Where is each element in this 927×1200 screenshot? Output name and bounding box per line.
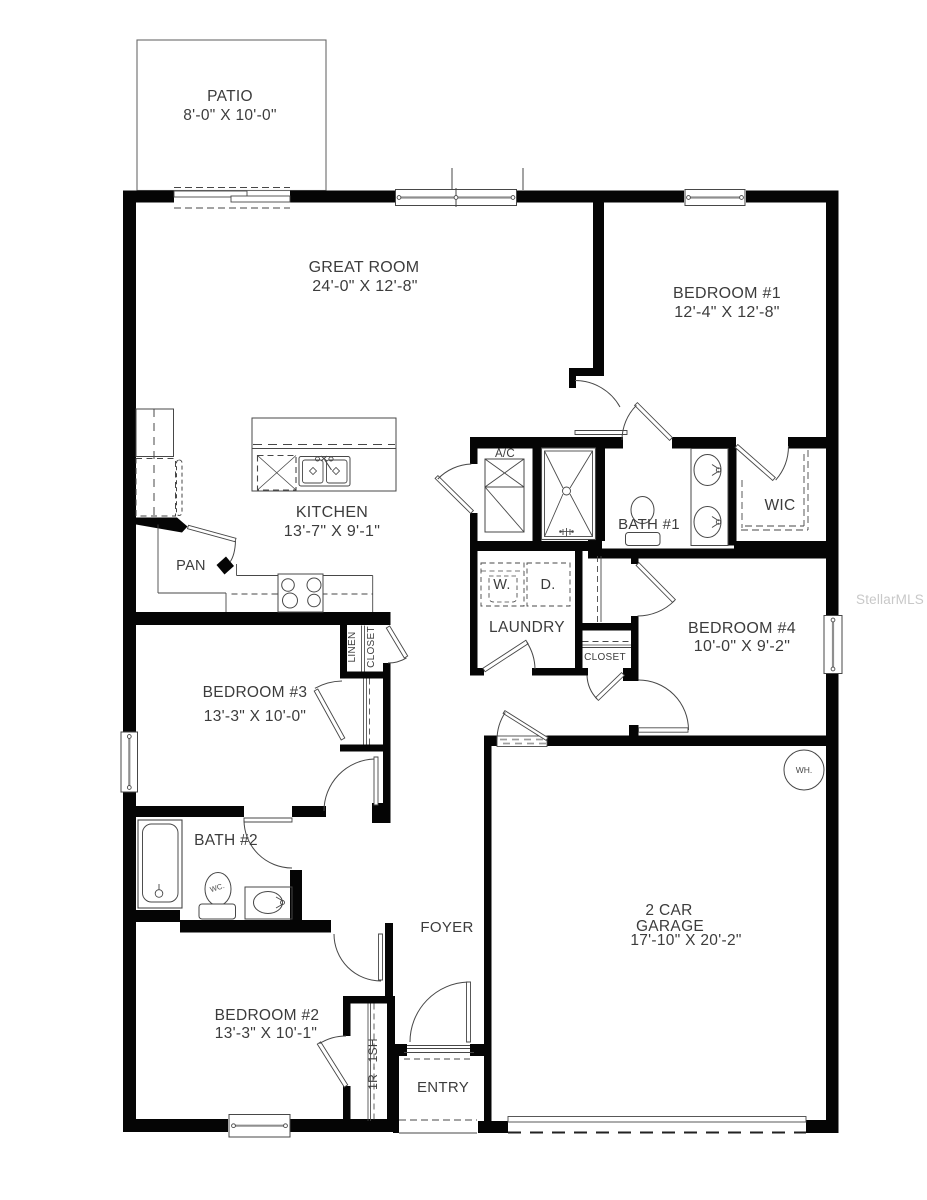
- svg-text:WIC: WIC: [764, 497, 795, 514]
- svg-text:24'-0" X 12'-8": 24'-0" X 12'-8": [312, 278, 418, 295]
- svg-text:13'-3" X 10'-0": 13'-3" X 10'-0": [204, 708, 306, 725]
- svg-text:LINEN: LINEN: [347, 632, 358, 663]
- svg-text:BEDROOM #1: BEDROOM #1: [673, 285, 781, 302]
- svg-text:D.: D.: [540, 577, 555, 593]
- svg-text:12'-4" X 12'-8": 12'-4" X 12'-8": [674, 304, 780, 321]
- svg-text:StellarMLS: StellarMLS: [856, 592, 924, 607]
- svg-text:2 CAR: 2 CAR: [645, 902, 692, 919]
- svg-text:13'-3" X 10'-1": 13'-3" X 10'-1": [215, 1025, 317, 1042]
- svg-text:BATH #2: BATH #2: [194, 832, 258, 849]
- svg-text:BEDROOM #2: BEDROOM #2: [215, 1007, 320, 1024]
- svg-text:13'-7" X 9'-1": 13'-7" X 9'-1": [284, 523, 380, 540]
- svg-text:LAUNDRY: LAUNDRY: [489, 619, 565, 636]
- svg-text:W.: W.: [493, 577, 511, 593]
- svg-text:BEDROOM #4: BEDROOM #4: [688, 620, 796, 637]
- svg-text:ENTRY: ENTRY: [417, 1079, 469, 1096]
- svg-text:BATH #1: BATH #1: [618, 516, 680, 533]
- svg-text:10'-0" X 9'-2": 10'-0" X 9'-2": [694, 638, 790, 655]
- svg-text:PATIO: PATIO: [207, 88, 253, 105]
- svg-text:WH.: WH.: [796, 765, 813, 775]
- svg-text:CLOSET: CLOSET: [584, 652, 626, 663]
- svg-text:GREAT ROOM: GREAT ROOM: [309, 259, 420, 276]
- svg-text:BEDROOM #3: BEDROOM #3: [203, 684, 308, 701]
- svg-text:FOYER: FOYER: [420, 919, 473, 936]
- svg-text:KITCHEN: KITCHEN: [296, 504, 368, 521]
- svg-text:1R - 1SH: 1R - 1SH: [366, 1038, 380, 1090]
- svg-text:CLOSET: CLOSET: [366, 626, 377, 668]
- svg-text:PAN: PAN: [176, 558, 206, 574]
- svg-text:8'-0" X 10'-0": 8'-0" X 10'-0": [183, 107, 277, 124]
- svg-text:A/C: A/C: [495, 448, 515, 460]
- svg-text:17'-10" X 20'-2": 17'-10" X 20'-2": [630, 932, 741, 949]
